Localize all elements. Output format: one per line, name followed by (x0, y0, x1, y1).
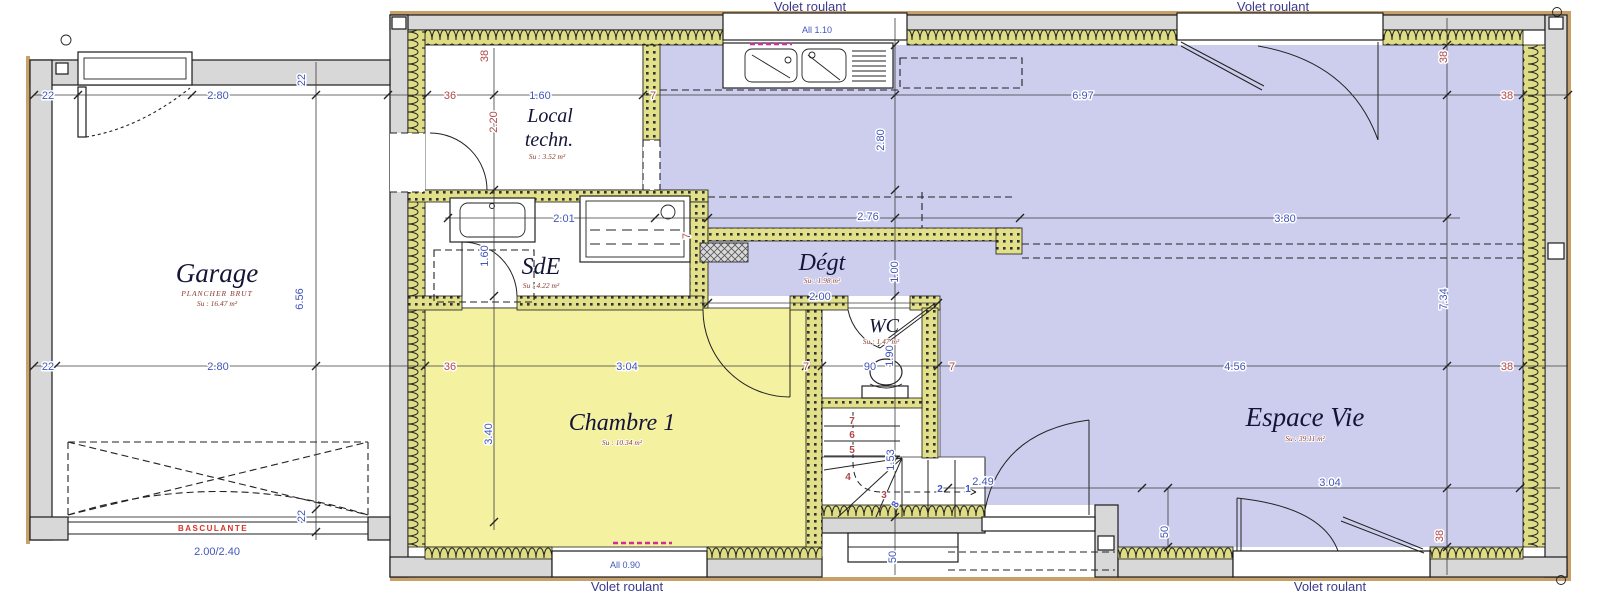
step-number: 2 (937, 484, 943, 495)
dim-label: 3.04 (616, 361, 637, 373)
dim-label: 7 (650, 90, 656, 102)
dim-label: 3.40 (483, 423, 495, 444)
volet-roulant-label: Volet roulant (774, 0, 847, 14)
part-wc-stairs (822, 398, 922, 408)
dim-label: 22 (296, 510, 308, 522)
wall-bottom-c (1118, 557, 1233, 577)
room-sub-chambre: Su : 10.34 m² (602, 438, 643, 447)
dim-label: 22 (42, 361, 54, 373)
room-sub-garage-1: PLANCHER BRUT (180, 289, 253, 298)
garage-wall-bottom-l (30, 517, 68, 540)
insul-left-a (408, 30, 425, 133)
dim-label: 36 (444, 361, 456, 373)
dim-label: 7 (681, 233, 693, 239)
dim-label: 50 (1159, 526, 1171, 538)
room-label-local-2: techn. (525, 129, 573, 151)
wall-bottom-d (1430, 557, 1567, 577)
insul-bottom-stairs (822, 505, 985, 518)
volet-roulant-label: Volet roulant (1294, 579, 1367, 594)
dim-label: 2.01 (553, 213, 574, 225)
wall-left-house (390, 15, 408, 577)
part-chambre-top-b (517, 296, 703, 310)
insul-top-c (1383, 30, 1523, 45)
dim-label: 2.80 (207, 361, 228, 373)
step-number: 6 (849, 430, 855, 441)
entry-door-sill (982, 517, 1095, 531)
dim-label: 38 (1434, 530, 1446, 542)
room-sub-garage-2: Su : 16.47 m² (197, 299, 238, 308)
part-degt-top (708, 228, 1020, 241)
step-number: 3 (881, 490, 887, 501)
dim-label: 2.80 (875, 129, 887, 150)
dim-label: 4.56 (1224, 361, 1245, 373)
dim-label: 6.97 (1072, 90, 1093, 102)
marker-wall-right (1548, 243, 1564, 259)
bottom-right-door-frame (1233, 551, 1430, 577)
garage-wall-bottom-r (368, 517, 390, 540)
dim-label: 1.53 (885, 449, 897, 470)
allege-bedroom-label: All 0.90 (610, 560, 640, 570)
pillar-crosshatch (700, 243, 748, 262)
dim-label: 38 (479, 50, 491, 62)
dim-label: 7 (949, 361, 955, 373)
room-label-garage: Garage (176, 258, 259, 288)
insul-right (1523, 45, 1545, 547)
part-wc-right (922, 308, 938, 458)
step-number: 5 (849, 445, 855, 456)
part-chambre-right (806, 310, 822, 547)
volet-roulant-label: Volet roulant (591, 579, 664, 594)
part-post (996, 228, 1022, 254)
room-label-local-1: Local (526, 105, 573, 127)
insul-top-a (425, 30, 723, 45)
step-number: 1 (965, 484, 971, 495)
floor-plan-drawing: Volet roulant Volet roulant Volet roulan… (0, 0, 1600, 600)
dim-label: 2.49 (972, 476, 993, 488)
garage-door-type-label: BASCULANTE (178, 524, 248, 533)
survey-point-icon (61, 35, 71, 45)
garage-door-size-label: 2.00/2.40 (194, 546, 240, 558)
marker-garage-corner (56, 63, 68, 74)
insul-top-b (907, 30, 1177, 45)
room-label-sde: SdE (522, 254, 561, 280)
dim-label: 2.80 (207, 90, 228, 102)
dim-label: 3.80 (1274, 213, 1295, 225)
dim-label: 22 (42, 90, 54, 102)
room-sub-sde: Su : 4.22 m² (523, 281, 560, 290)
garage-window (78, 52, 192, 85)
dim-label: 22 (296, 74, 308, 86)
room-sub-degt: Su : 1.98 m² (804, 276, 841, 285)
garage-local-opening (390, 133, 425, 192)
local-kitchen-opening (643, 140, 660, 190)
dim-label: 38 (1438, 51, 1450, 63)
dim-label: 1.60 (529, 90, 550, 102)
floor-plan-page: Volet roulant Volet roulant Volet roulan… (0, 0, 1600, 600)
allege-kitchen-label: All 1.10 (802, 25, 832, 35)
marker-entry-pier (1098, 536, 1114, 550)
insul-bottom-d (1430, 547, 1523, 559)
dim-label: 36 (444, 90, 456, 102)
dim-label: 2.00 (809, 291, 830, 303)
marker-house-tr (1549, 17, 1563, 29)
wall-bottom-stairs (822, 517, 985, 533)
wall-bottom-b (707, 557, 822, 577)
dim-label: 2.76 (857, 211, 878, 223)
room-label-wc: WC (869, 315, 900, 337)
room-sub-espace-vie: Su : 39.11 m² (1285, 434, 1325, 443)
dim-label: 3.04 (1319, 477, 1340, 489)
wall-right (1545, 15, 1567, 577)
shower-tray (580, 196, 690, 262)
top-right-door-frame (1177, 13, 1383, 40)
insul-bottom-a (425, 547, 552, 559)
floor-areas (52, 45, 1523, 547)
room-label-espace-vie: Espace Vie (1245, 402, 1365, 432)
dim-label: 6.56 (294, 288, 306, 309)
volet-roulant-label: Volet roulant (1237, 0, 1310, 14)
porch-dash (948, 552, 1115, 570)
room-sub-wc: Su : 1.47 m² (863, 337, 900, 346)
dim-label: 2.20 (488, 111, 500, 132)
marker-house-tl (392, 17, 406, 29)
dim-label: 90 (864, 361, 876, 373)
insul-bottom-c (1118, 547, 1233, 559)
part-chambre-top-a (408, 296, 462, 310)
insul-bottom-b (707, 547, 822, 559)
dim-label: 1.60 (479, 245, 491, 266)
room-sub-local: Su : 3.52 m² (529, 152, 566, 161)
dim-label: 1.00 (889, 261, 901, 282)
dim-label: 38 (1501, 90, 1513, 102)
dim-label: 38 (1501, 361, 1513, 373)
garage-wall-left (30, 60, 52, 540)
dim-label: 7 (803, 361, 809, 373)
room-label-degt: Dégt (798, 250, 847, 276)
room-label-chambre: Chambre 1 (569, 410, 675, 436)
step-number: 7 (849, 416, 855, 427)
dim-label: 7.34 (1438, 288, 1450, 309)
step-number: 4 (845, 472, 851, 483)
dim-label: 50 (887, 551, 899, 563)
wall-bottom-a (390, 557, 552, 577)
dim-label: 1.90 (884, 345, 896, 366)
